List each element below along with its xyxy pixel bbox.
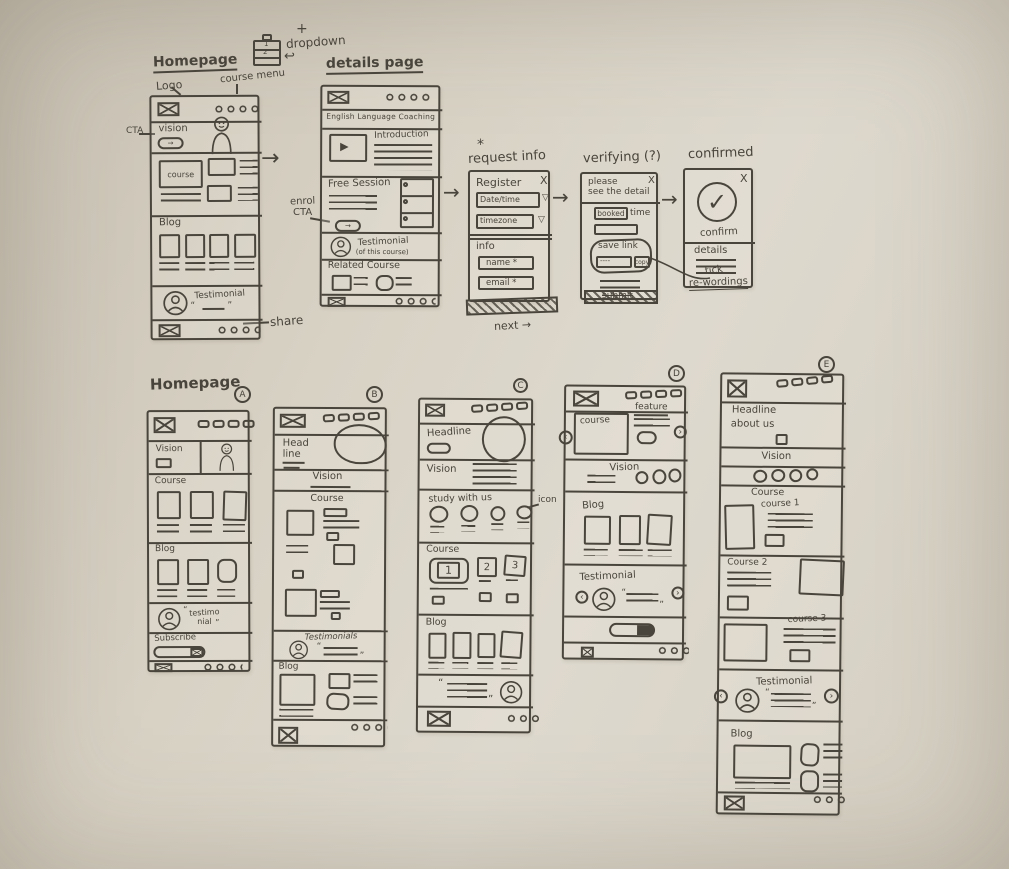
menu-pill <box>243 420 255 428</box>
submit-label: submit <box>602 292 633 301</box>
carousel-left-icon: ‹ <box>559 430 573 444</box>
menu-pill <box>640 390 652 399</box>
section-divider <box>322 232 442 234</box>
course-menu-note: course menu <box>220 69 286 86</box>
menu-pill <box>228 420 240 428</box>
headline-label2: line <box>283 450 301 461</box>
cta-button <box>637 431 657 444</box>
menu-pill <box>353 412 365 421</box>
text-lines <box>517 521 529 528</box>
blog-thumb <box>800 743 820 767</box>
course-menu-dots <box>213 104 259 115</box>
course-thumb <box>222 491 247 522</box>
menu-pill <box>776 379 789 388</box>
menu-pill <box>486 403 498 412</box>
text-lines <box>320 601 350 610</box>
note-line <box>236 84 238 94</box>
blog-label: Blog <box>155 545 175 555</box>
text-lines <box>185 262 205 272</box>
logo-icon <box>425 404 445 417</box>
radio-icon <box>403 182 408 187</box>
flow-arrow-icon: → <box>552 187 569 208</box>
blog-thumb <box>584 516 611 545</box>
play-icon: ▶ <box>340 141 349 153</box>
menu-pill <box>471 404 483 413</box>
vision-circle <box>789 469 802 482</box>
person-doodle-icon <box>206 115 236 155</box>
course-label: Course <box>155 477 186 487</box>
text-lines <box>238 187 258 201</box>
course-3-label: course 3 <box>788 614 827 625</box>
menu-pill <box>368 412 380 421</box>
variant-e-wireframe: Headline about us Vision Course course 1… <box>716 372 845 815</box>
variant-b-wireframe: Head line Vision Course Testimonials “ ”… <box>271 407 387 748</box>
menu-pill <box>625 391 637 400</box>
footer-logo-icon <box>581 647 594 658</box>
vision-label: Vision <box>427 465 457 476</box>
testimonial-avatar-icon <box>157 607 181 631</box>
course-title-bar <box>320 590 340 598</box>
section-divider <box>152 285 262 288</box>
share-dots <box>394 296 436 307</box>
text-lines <box>428 662 444 669</box>
flow-arrow-icon: → <box>661 189 678 210</box>
subscribe-label: Subscribe <box>154 633 196 644</box>
section-divider <box>565 563 687 566</box>
quote-open: “ <box>317 643 322 652</box>
hero-image <box>334 424 387 464</box>
text-lines <box>452 662 468 669</box>
flow-arrow-icon: → <box>443 182 460 203</box>
menu-pill <box>338 413 350 422</box>
blog-thumb <box>428 633 446 659</box>
vision-label: Vision <box>761 452 791 463</box>
logo-note: Logo <box>156 79 183 92</box>
text-lines <box>461 525 475 532</box>
section-divider <box>274 490 388 493</box>
course-thumb <box>157 491 181 519</box>
text-lines <box>735 782 790 790</box>
blog-thumb <box>209 234 229 258</box>
homepage-title: Homepage <box>153 53 238 74</box>
study-with-us-label: study with us <box>428 493 492 505</box>
course-thumb <box>207 185 232 202</box>
feature-icon <box>429 506 448 523</box>
logo-icon <box>573 391 599 407</box>
text-lines <box>234 262 254 272</box>
email-label: email * <box>486 279 516 288</box>
menu-pill <box>516 401 528 410</box>
copy-link-annotation-line <box>640 248 755 293</box>
testimonials-label: Testimonials <box>305 632 358 642</box>
curl-arrow-icon: ↩ <box>284 50 295 64</box>
quote-open: “ <box>183 606 187 614</box>
course-thumb <box>333 544 355 565</box>
course-thumb <box>208 158 236 176</box>
testimonial-label: Testimonial <box>194 289 245 301</box>
share-note: share <box>270 314 304 329</box>
vision-label: Vision <box>156 445 183 455</box>
cta-button <box>776 434 788 445</box>
text-lines <box>430 588 468 594</box>
course-button <box>432 596 445 605</box>
blog-thumb <box>187 559 209 585</box>
save-link-label: save link <box>598 242 638 251</box>
vision-circle <box>806 468 818 480</box>
footer-logo-icon <box>278 727 298 744</box>
section-divider <box>420 459 535 462</box>
nav-menu <box>625 389 682 399</box>
quote-close: ” <box>812 702 817 711</box>
course-label: Course <box>751 488 784 498</box>
carousel-left-icon: ‹ <box>575 591 588 604</box>
course-thumb <box>723 623 767 661</box>
vision-circle <box>668 468 681 482</box>
testimonial-avatar-icon <box>288 640 310 660</box>
text-lines <box>823 773 842 787</box>
testimonial-avatar-icon <box>590 587 617 612</box>
section-divider <box>722 446 846 449</box>
timezone-label: timezone <box>480 217 517 225</box>
course-label: Course <box>310 494 343 504</box>
menu-pill <box>501 402 513 411</box>
text-lines <box>648 549 672 556</box>
verifying-title: verifying (?) <box>583 150 661 166</box>
share-dots <box>217 325 261 336</box>
footer-logo-icon <box>159 324 181 337</box>
testimonial-label: Testimonial <box>579 571 636 584</box>
text-lines <box>600 280 640 289</box>
text-lines <box>187 589 207 597</box>
text-lines <box>634 418 670 428</box>
booked-time-box <box>594 224 638 235</box>
text-lines <box>396 277 412 289</box>
related-thumb <box>332 275 352 291</box>
testimonial-label2: nial <box>197 618 211 626</box>
text-lines <box>473 463 517 485</box>
section-divider <box>582 202 660 204</box>
text-lines <box>217 589 235 597</box>
course-button <box>479 592 492 602</box>
flow-arrow-icon: → <box>261 147 279 170</box>
blog-thumb <box>159 234 180 258</box>
blog-thumb <box>328 673 350 689</box>
menu-pill <box>198 420 210 428</box>
details-wireframe: English Language Coaching ▶ Introduction… <box>320 85 441 307</box>
course-number-2: 2 <box>477 557 497 577</box>
subscribe-button <box>190 648 203 657</box>
radio-icon <box>403 216 408 221</box>
feature-icon <box>516 505 532 519</box>
variant-c-wireframe: Headline Vision study with us Course 1 2… <box>416 398 533 734</box>
request-modal: Register X Date/time ▽ timezone ▽ info n… <box>468 170 550 302</box>
text-lines <box>353 674 377 686</box>
course-button <box>326 532 339 541</box>
bottom-homepage-title: Homepage <box>150 374 241 393</box>
section-divider <box>149 473 252 475</box>
text-lines <box>324 647 358 656</box>
confirmed-title: confirmed <box>688 146 754 162</box>
menu-pill <box>791 377 804 386</box>
section-divider <box>719 719 843 722</box>
info-label: info <box>476 242 495 253</box>
course-thumb <box>190 491 214 519</box>
vision-circle <box>635 471 648 484</box>
nav-menu <box>323 412 380 423</box>
link-dashes: ---- <box>600 258 610 265</box>
share-dots <box>349 722 387 733</box>
section-divider <box>564 615 686 618</box>
text-lines <box>783 628 835 647</box>
next-note: next → <box>494 319 532 332</box>
menu-pill <box>821 375 834 384</box>
share-dots <box>506 713 542 723</box>
course-button <box>727 595 749 610</box>
blog-thumb <box>499 630 523 659</box>
register-label: Register <box>476 177 521 189</box>
column-divider <box>200 440 202 473</box>
introduction-label: Introduction <box>374 130 429 141</box>
see-detail-label: see the detail <box>588 188 650 197</box>
menu-pill <box>670 389 682 398</box>
confirm-label: confirm <box>700 227 738 239</box>
vision-circle <box>652 469 666 484</box>
headline-label2: about us <box>731 419 775 430</box>
vision-circle <box>753 470 767 483</box>
section-divider <box>152 152 262 155</box>
text-lines <box>771 693 811 707</box>
text-lines <box>240 160 258 176</box>
quote-open: “ <box>438 679 443 690</box>
section-divider <box>418 706 533 709</box>
nav-menu <box>776 375 833 388</box>
course-label: Course <box>426 545 459 555</box>
cta-button <box>427 443 451 454</box>
check-circle-icon: ✓ <box>697 182 737 222</box>
blog-label: Blog <box>159 218 181 229</box>
request-info-title: request info <box>468 149 547 167</box>
section-divider <box>470 238 552 240</box>
footer-logo-icon <box>154 663 172 672</box>
close-icon: X <box>648 176 655 187</box>
section-divider <box>418 674 533 677</box>
nav-menu <box>198 420 255 428</box>
radio-icon <box>403 199 408 204</box>
blog-thumb <box>800 770 819 792</box>
text-lines <box>161 193 201 203</box>
carousel-right-icon: › <box>671 586 684 599</box>
time-label: time <box>630 209 650 218</box>
menu-pill <box>323 414 335 423</box>
feature-icon <box>490 506 505 521</box>
text-lines <box>279 709 313 717</box>
feature-label: feature <box>635 403 668 413</box>
blog-thumb <box>646 514 673 546</box>
text-lines <box>768 513 813 531</box>
underline <box>310 486 350 488</box>
carousel-left-icon: ‹ <box>714 689 728 703</box>
blog-thumb <box>733 745 791 780</box>
course-button <box>331 612 341 620</box>
text-lines <box>477 662 493 669</box>
text-lines <box>374 144 432 170</box>
course-button <box>789 649 810 662</box>
text-lines <box>823 743 842 759</box>
menu-pill <box>213 420 225 428</box>
logo-icon <box>154 417 176 433</box>
logo-icon <box>280 414 306 428</box>
carousel-right-icon: › <box>824 688 839 703</box>
text-lines <box>286 545 308 557</box>
section-divider <box>322 109 442 111</box>
dropdown-divider <box>254 57 280 59</box>
carousel-right-icon: › <box>674 425 687 438</box>
blog-label: Blog <box>279 663 299 673</box>
booked-chip: booked <box>594 207 628 220</box>
text-lines <box>619 549 643 556</box>
blog-thumb <box>619 515 641 545</box>
section-divider <box>149 602 252 604</box>
text-lines <box>447 683 487 699</box>
variant-d-wireframe: ‹ course feature › Vision Blog Testimoni… <box>562 384 686 660</box>
blog-thumb <box>477 633 495 658</box>
course-label: course <box>580 416 610 427</box>
blog-label: Blog <box>426 618 447 628</box>
share-dots <box>657 645 689 655</box>
vision-label: Vision <box>312 472 342 483</box>
dropdown-item-2: 2 <box>263 49 267 56</box>
variant-badge-a: A <box>234 386 251 403</box>
feature-icon <box>460 505 478 522</box>
text-lines <box>727 571 771 589</box>
text-lines <box>209 262 229 272</box>
plus-icon: + <box>296 22 308 37</box>
cta-button: → <box>158 137 184 149</box>
text-lines <box>479 580 491 586</box>
course-thumb <box>285 589 317 617</box>
course-button <box>764 534 784 547</box>
course-button <box>506 593 519 603</box>
enrol-cta-button: → <box>335 220 361 232</box>
menu-pill <box>655 390 667 399</box>
testimonial-avatar-icon <box>330 236 352 258</box>
text-lines <box>506 579 518 585</box>
icon-note: icon <box>538 496 557 505</box>
course-thumb <box>724 504 755 550</box>
homepage-wireframe: vision → course Blog Testimonial “ ” <box>149 95 260 341</box>
related-course-label: Related Course <box>328 261 400 271</box>
testimonial-avatar-icon <box>162 290 188 316</box>
blog-thumb <box>234 234 256 258</box>
variant-badge-d: D <box>668 365 685 382</box>
text-lines <box>430 526 444 533</box>
testimonial-label: Testimonial <box>756 676 813 688</box>
nav-menu <box>471 401 528 413</box>
text-line <box>283 462 305 464</box>
section-divider <box>420 489 535 492</box>
name-label: name * <box>486 259 517 268</box>
text-lines <box>587 475 615 485</box>
testimonial-sub: (of this course) <box>356 249 409 257</box>
quote-line <box>202 308 224 310</box>
variant-badge-b: B <box>366 386 383 403</box>
quote-close: ” <box>659 601 664 610</box>
close-icon: X <box>540 175 548 187</box>
section-divider <box>273 719 387 722</box>
text-lines <box>491 523 503 530</box>
course-button <box>292 570 304 579</box>
course-heading: English Language Coaching <box>326 113 435 121</box>
date-time-label: Date/time <box>480 196 520 204</box>
blog-thumb <box>157 559 179 585</box>
headline-label: Headline <box>732 405 776 416</box>
course-1-label: course 1 <box>761 499 800 510</box>
caret-down-icon: ▽ <box>538 216 545 225</box>
variant-badge-c: C <box>513 378 528 393</box>
quote-open: “ <box>190 302 195 311</box>
blog-thumb <box>185 234 205 258</box>
logo-icon <box>157 102 179 116</box>
text-lines <box>329 195 377 211</box>
text-lines <box>584 549 608 556</box>
text-lines <box>501 662 517 669</box>
vision-label: Vision <box>609 463 639 474</box>
section-divider <box>153 319 263 322</box>
course-card: course <box>159 160 203 188</box>
section-divider <box>685 242 755 244</box>
cta-button <box>156 458 172 468</box>
share-dots <box>202 662 242 672</box>
cta-note: CTA <box>126 127 143 136</box>
text-lines <box>223 524 245 536</box>
details-page-title: details page <box>326 55 424 74</box>
paper-sketch: { "colors": {"paper": "#d8d2c5", "ink": … <box>0 0 1009 869</box>
quote-close: ” <box>215 619 219 627</box>
blog-thumb <box>326 692 350 710</box>
blog-thumb <box>279 674 315 706</box>
subscribe-button <box>637 625 653 635</box>
testimonial-avatar-icon <box>498 680 524 704</box>
hero-image <box>482 416 526 462</box>
section-divider <box>719 668 843 671</box>
footer-logo-icon <box>427 711 451 727</box>
close-icon: X <box>740 173 748 185</box>
course-thumb <box>798 558 845 596</box>
footer-logo-icon <box>328 297 346 307</box>
scribbled-submit-bar <box>466 296 559 315</box>
nav-dots <box>384 92 432 103</box>
blog-label: Blog <box>582 500 605 512</box>
free-session-label: Free Session <box>328 178 391 190</box>
testimonial-label: Testimonial <box>358 237 409 249</box>
text-lines <box>626 593 658 605</box>
variant-a-wireframe: Vision Course Blog “ testimo nial ” Subs… <box>147 410 251 672</box>
section-divider <box>564 641 686 644</box>
text-lines <box>157 524 179 536</box>
text-lines <box>353 696 377 708</box>
section-divider <box>470 234 552 236</box>
list-divider <box>401 195 433 197</box>
text-lines <box>190 524 212 536</box>
text-lines <box>354 277 368 289</box>
quote-close: ” <box>488 695 493 706</box>
course-title-bar <box>323 508 347 517</box>
caret-down-icon: ▽ <box>542 194 549 203</box>
section-divider <box>721 465 845 468</box>
logo-icon <box>327 91 349 104</box>
text-lines <box>159 262 179 272</box>
related-thumb <box>376 275 394 291</box>
